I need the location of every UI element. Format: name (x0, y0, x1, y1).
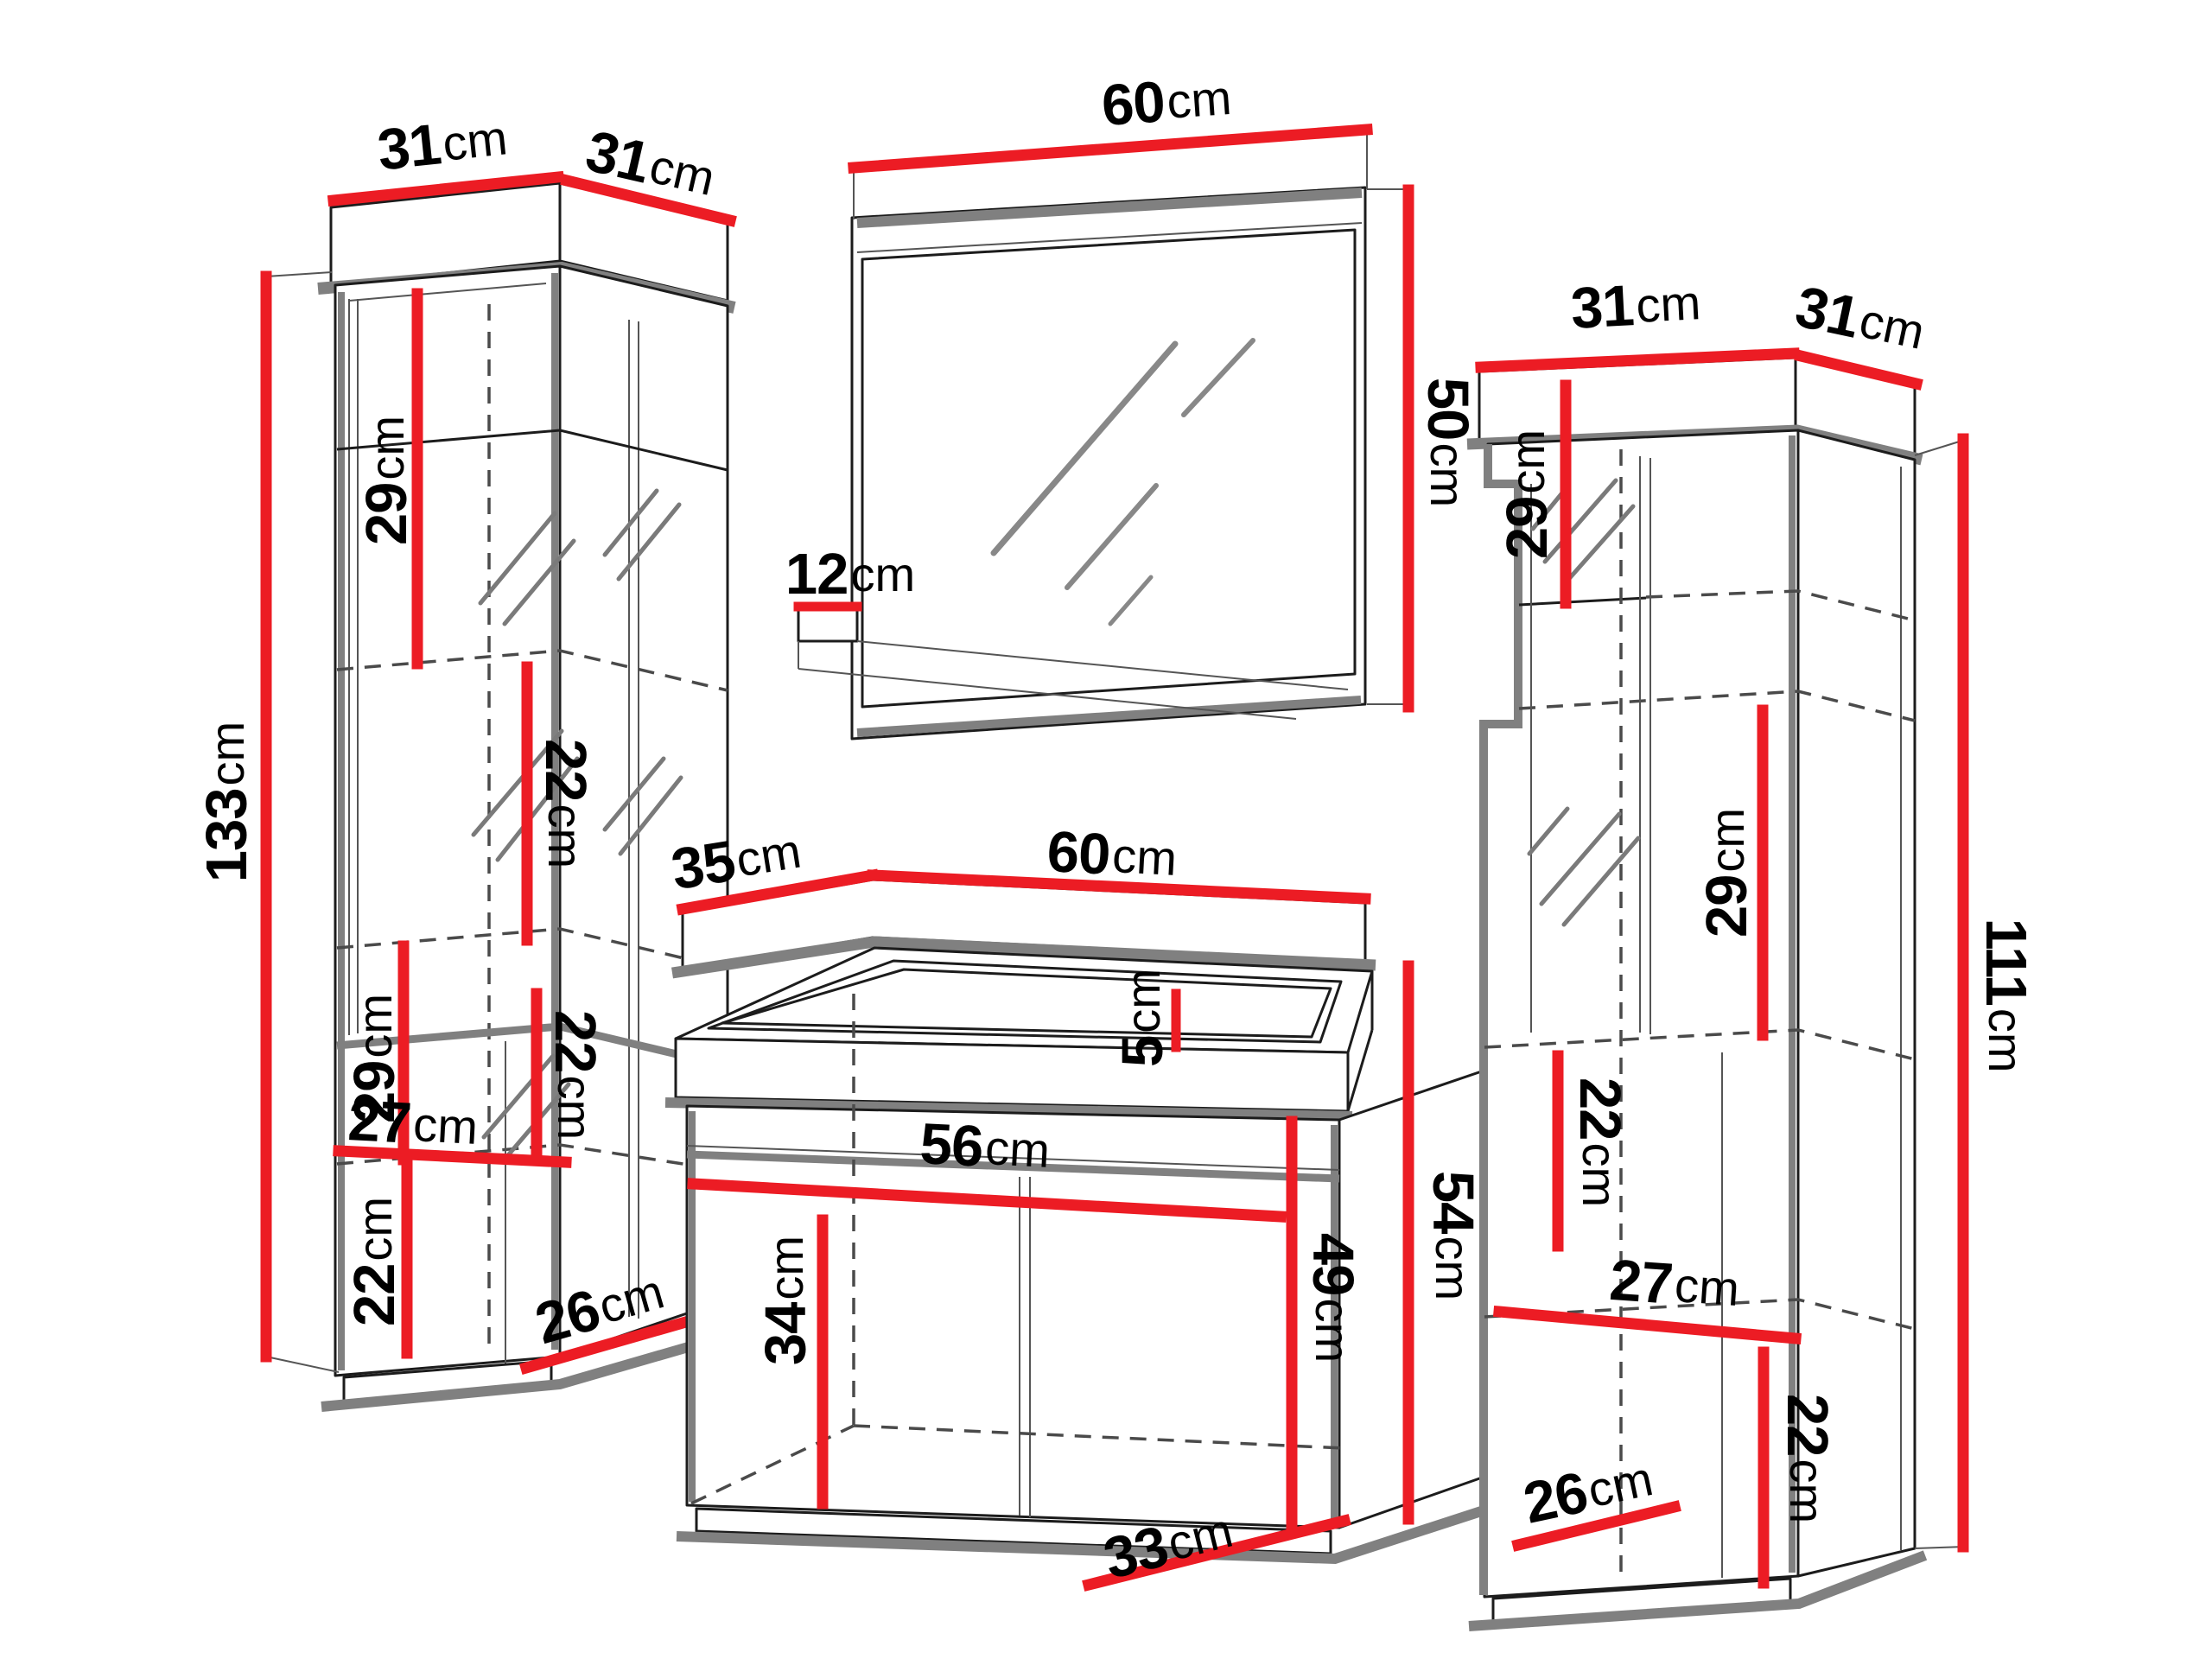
dim-label-left-height: 133cm (194, 721, 259, 882)
svg-text:22cm: 22cm (1568, 1077, 1633, 1207)
dim-label-mirror-height: 50cm (1416, 378, 1481, 507)
dim-label-right-top-front: 31cm (1569, 270, 1702, 341)
svg-text:22cm: 22cm (342, 1197, 407, 1326)
svg-text:31cm: 31cm (1790, 274, 1930, 365)
mirror-shelf-end (798, 610, 857, 641)
svg-text:111cm: 111cm (1974, 918, 2039, 1072)
svg-text:50cm: 50cm (1416, 378, 1481, 507)
svg-text:133cm: 133cm (194, 721, 259, 882)
dim-label-right-middle-gap: 29cm (1694, 808, 1759, 938)
dim-label-right-bottom-gap-upper: 22cm (1568, 1077, 1633, 1207)
svg-text:5cm: 5cm (1110, 969, 1175, 1067)
left-cabinet-drawing (266, 177, 739, 1407)
dim-label-vanity-door-height: 34cm (753, 1236, 818, 1365)
dim-label-right-bottom-gap-lower: 22cm (1776, 1394, 1840, 1523)
dim-label-left-bottom-gap-right: 22cm (543, 1010, 608, 1140)
svg-text:34cm: 34cm (753, 1236, 818, 1365)
svg-text:22cm: 22cm (534, 739, 599, 868)
svg-text:29cm: 29cm (1694, 808, 1759, 938)
svg-text:29cm: 29cm (354, 416, 419, 545)
svg-text:12cm: 12cm (785, 542, 915, 607)
svg-text:54cm: 54cm (1421, 1171, 1486, 1300)
mirror-drawing (798, 130, 1410, 739)
dim-label-mirror-shelf-depth: 12cm (785, 542, 915, 607)
dim-label-vanity-side-height: 54cm (1421, 1171, 1486, 1300)
dim-label-vanity-front-height: 49cm (1301, 1233, 1366, 1363)
mirror-frame (852, 188, 1365, 739)
svg-text:22cm: 22cm (543, 1010, 608, 1140)
dim-label-left-middle-gap: 22cm (534, 739, 599, 868)
svg-text:31cm: 31cm (374, 105, 510, 182)
dim-label-left-bottom-gap-left: 22cm (342, 1197, 407, 1326)
svg-text:31cm: 31cm (1569, 270, 1702, 341)
dim-label-vanity-basin-height: 5cm (1110, 969, 1175, 1067)
svg-text:29cm: 29cm (1495, 429, 1560, 559)
svg-text:60cm: 60cm (1046, 819, 1179, 891)
dim-label-left-top-front: 31cm (374, 105, 510, 182)
dim-label-left-upper-gap: 29cm (354, 416, 419, 545)
svg-text:22cm: 22cm (1776, 1394, 1840, 1523)
dim-label-vanity-top-width: 60cm (1046, 819, 1179, 891)
dim-label-right-height: 111cm (1974, 918, 2039, 1072)
dim-label-mirror-width: 60cm (1099, 64, 1233, 137)
dim-label-right-upper-gap: 29cm (1495, 429, 1560, 559)
svg-text:49cm: 49cm (1301, 1233, 1366, 1363)
furniture-dimension-diagram: 31cm 31cm 133cm 29cm 22cm 29cm 22cm 27cm… (0, 0, 2212, 1659)
diagram-canvas: 31cm 31cm 133cm 29cm 22cm 29cm 22cm 27cm… (0, 0, 2212, 1659)
vanity-drawing (665, 875, 1510, 1585)
svg-text:60cm: 60cm (1099, 64, 1233, 137)
dim-label-right-top-side: 31cm (1790, 274, 1930, 365)
